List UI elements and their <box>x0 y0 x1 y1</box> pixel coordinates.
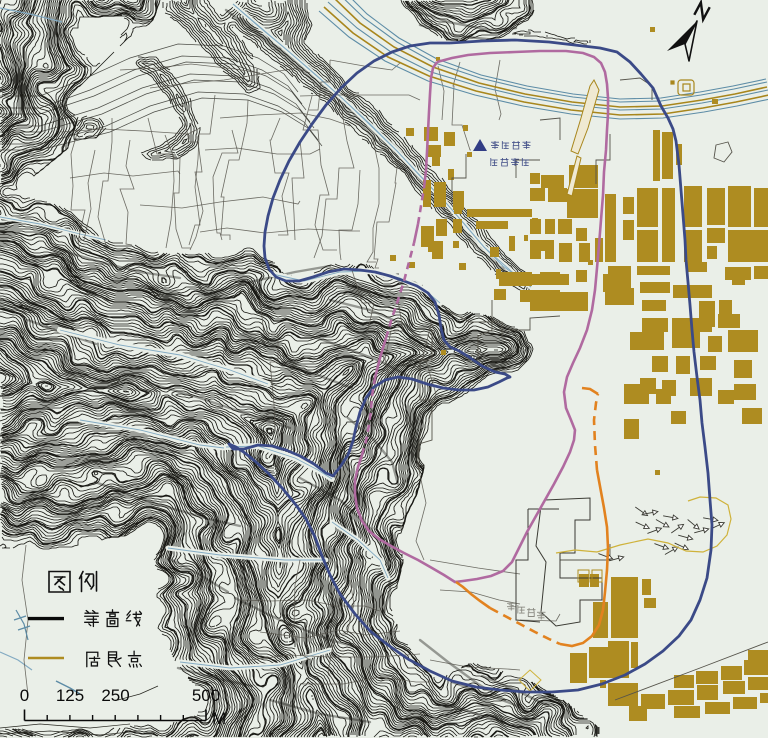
svg-text:125: 125 <box>56 686 84 705</box>
svg-text:250: 250 <box>101 686 129 705</box>
svg-text:500: 500 <box>192 686 220 705</box>
svg-text:0: 0 <box>20 686 29 705</box>
svg-text:M: M <box>212 709 226 728</box>
